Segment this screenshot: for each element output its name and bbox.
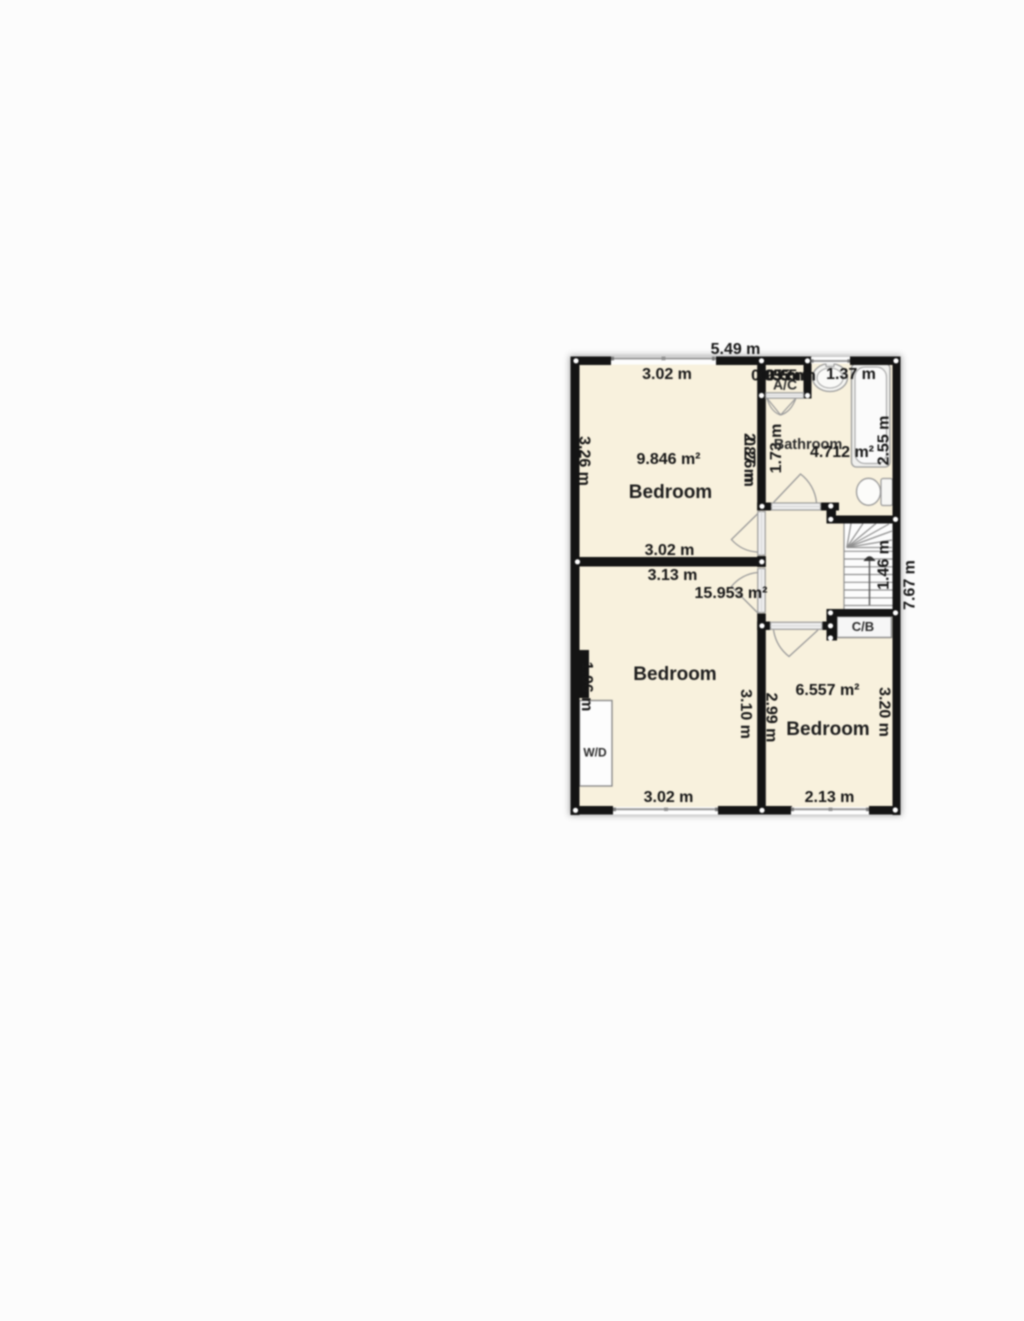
svg-text:1.37 m: 1.37 m xyxy=(826,366,876,383)
svg-text:0.26 m: 0.26 m xyxy=(741,437,758,487)
svg-text:C/B: C/B xyxy=(852,619,874,634)
svg-text:6.557 m²: 6.557 m² xyxy=(795,682,859,699)
svg-text:15.953 m²: 15.953 m² xyxy=(695,585,768,602)
svg-text:3.13 m: 3.13 m xyxy=(648,567,698,584)
svg-text:7.67 m: 7.67 m xyxy=(902,560,919,610)
svg-text:2.13 m: 2.13 m xyxy=(805,789,855,806)
svg-text:9.846 m²: 9.846 m² xyxy=(636,451,700,468)
svg-text:5.49 m: 5.49 m xyxy=(711,341,761,358)
svg-text:2.55 m: 2.55 m xyxy=(876,416,893,466)
svg-text:3.20 m: 3.20 m xyxy=(876,687,893,737)
svg-text:3.02 m: 3.02 m xyxy=(642,366,692,383)
svg-text:3.10 m: 3.10 m xyxy=(737,689,754,739)
svg-text:3.26 m: 3.26 m xyxy=(576,436,593,486)
svg-text:4.712 m²: 4.712 m² xyxy=(810,444,874,461)
svg-text:3.02 m: 3.02 m xyxy=(645,542,695,559)
svg-text:1.46 m: 1.46 m xyxy=(876,540,893,590)
svg-text:1.06 m: 1.06 m xyxy=(578,662,595,712)
svg-text:Bedroom: Bedroom xyxy=(786,719,869,740)
svg-text:3.02 m: 3.02 m xyxy=(644,789,694,806)
svg-text:Bedroom: Bedroom xyxy=(629,482,712,503)
svg-text:2.99 m: 2.99 m xyxy=(763,693,780,743)
svg-text:W/D: W/D xyxy=(583,746,607,760)
svg-text:Bedroom: Bedroom xyxy=(633,664,716,685)
svg-text:A/C: A/C xyxy=(773,377,797,393)
